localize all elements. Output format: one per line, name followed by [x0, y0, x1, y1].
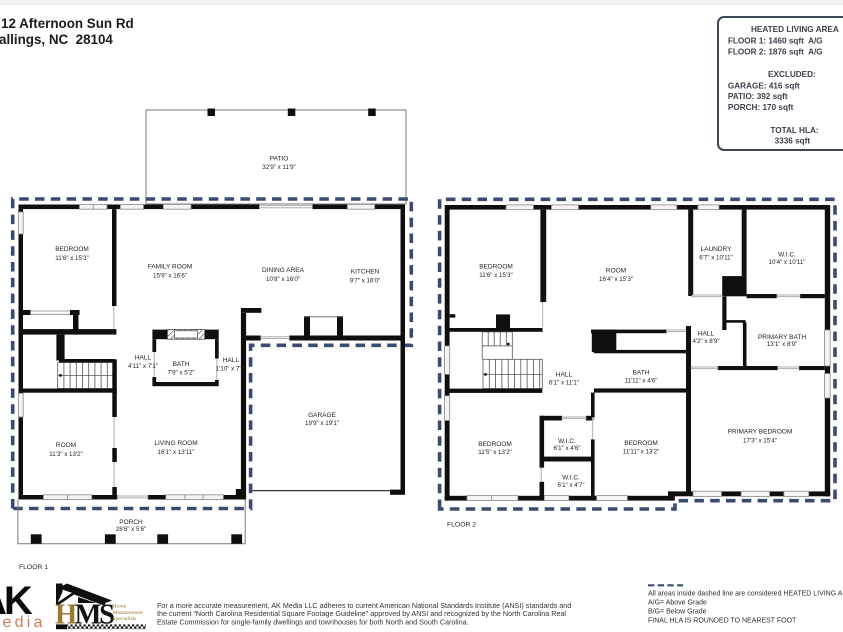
- svg-text:15'9" x 16'6": 15'9" x 16'6": [153, 272, 187, 279]
- svg-text:28'6" x 5'6": 28'6" x 5'6": [116, 526, 147, 533]
- svg-text:4'2" x 8'9": 4'2" x 8'9": [692, 338, 719, 345]
- svg-text:6'1" x 4'6": 6'1" x 4'6": [553, 445, 580, 452]
- svg-text:FLOOR 2: 1876 sqft A/G: FLOOR 2: 1876 sqft A/G: [728, 47, 823, 56]
- svg-text:Home: Home: [113, 604, 127, 610]
- svg-text:4'11" x 7'1": 4'11" x 7'1": [128, 363, 158, 370]
- svg-text:PRIMARY BEDROOM: PRIMARY BEDROOM: [728, 428, 793, 435]
- svg-text:7'9" x 5'2": 7'9" x 5'2": [167, 370, 194, 377]
- svg-text:16'1" x 13'11": 16'1" x 13'11": [158, 449, 195, 456]
- svg-text:EXCLUDED:: EXCLUDED:: [768, 70, 816, 79]
- svg-text:11'5" x 13'2": 11'5" x 13'2": [478, 449, 511, 456]
- svg-text:BEDROOM: BEDROOM: [55, 246, 89, 253]
- svg-text:3336 sqft: 3336 sqft: [775, 137, 811, 146]
- svg-text:BATH: BATH: [173, 361, 190, 368]
- svg-text:BATH: BATH: [633, 369, 650, 376]
- svg-text:9'7" x 16'0": 9'7" x 16'0": [350, 277, 381, 284]
- svg-text:6'7" x 10'11": 6'7" x 10'11": [699, 254, 732, 261]
- svg-text:11'11" x 4'6": 11'11" x 4'6": [624, 377, 657, 384]
- svg-text:media: media: [0, 614, 46, 631]
- svg-text:FINAL HLA IS ROUNDED TO NEARES: FINAL HLA IS ROUNDED TO NEAREST FOOT: [648, 617, 797, 624]
- svg-text:19'9" x 19'1": 19'9" x 19'1": [305, 420, 339, 427]
- svg-text:11'6" x 15'3": 11'6" x 15'3": [55, 255, 88, 262]
- svg-text:HALL: HALL: [556, 371, 573, 378]
- svg-text:FLOOR 1: FLOOR 1: [19, 564, 48, 571]
- svg-text:1'10" x 7'1": 1'10" x 7'1": [216, 366, 247, 373]
- svg-text:All areas inside dashed line a: All areas inside dashed line are conside…: [648, 591, 843, 598]
- svg-text:GARAGE: GARAGE: [308, 412, 336, 419]
- svg-text:ROOM: ROOM: [606, 267, 626, 274]
- svg-text:B/G= Below Grade: B/G= Below Grade: [648, 609, 707, 616]
- svg-text:GARAGE: 416 sqft: GARAGE: 416 sqft: [728, 81, 800, 90]
- svg-text:32'9" x 11'9": 32'9" x 11'9": [262, 164, 295, 171]
- svg-text:Measurement: Measurement: [113, 610, 144, 616]
- svg-text:HALL: HALL: [698, 330, 715, 337]
- svg-text:13'1" x 8'9": 13'1" x 8'9": [767, 341, 798, 348]
- svg-text:FLOOR 1: 1460 sqft A/G: FLOOR 1: 1460 sqft A/G: [728, 37, 823, 46]
- svg-text:BEDROOM: BEDROOM: [479, 263, 513, 270]
- svg-text:PATIO: 392 sqft: PATIO: 392 sqft: [728, 92, 788, 101]
- svg-text:11'6" x 15'3": 11'6" x 15'3": [479, 272, 512, 279]
- svg-text:16'4" x 15'3": 16'4" x 15'3": [599, 276, 633, 283]
- svg-text:6'1" x 4'7": 6'1" x 4'7": [557, 482, 584, 489]
- svg-text:Estate Commission for single-f: Estate Commission for single-family dwel…: [157, 617, 469, 626]
- svg-text:TOTAL HLA:: TOTAL HLA:: [770, 126, 818, 135]
- svg-text:11'3" x 13'2": 11'3" x 13'2": [49, 451, 82, 458]
- svg-text:ROOM: ROOM: [56, 442, 76, 449]
- svg-text:PRIMARY BATH: PRIMARY BATH: [758, 334, 806, 341]
- svg-text:W.I.C.: W.I.C.: [562, 474, 580, 481]
- svg-text:W.I.C.: W.I.C.: [778, 251, 796, 258]
- svg-text:PORCH: 170 sqft: PORCH: 170 sqft: [728, 103, 794, 112]
- svg-text:FAMILY ROOM: FAMILY ROOM: [148, 263, 193, 270]
- svg-text:17'3" x 15'4": 17'3" x 15'4": [743, 437, 777, 444]
- svg-text:6'1" x 11'1": 6'1" x 11'1": [549, 379, 579, 386]
- svg-text:LAUNDRY: LAUNDRY: [701, 246, 733, 253]
- svg-text:HALL: HALL: [223, 357, 240, 364]
- svg-text:10'4" x 10'11": 10'4" x 10'11": [769, 259, 806, 266]
- svg-text:W.I.C.: W.I.C.: [558, 438, 576, 445]
- svg-text:BEDROOM: BEDROOM: [624, 440, 658, 447]
- svg-text:10'8" x 16'0": 10'8" x 16'0": [266, 276, 300, 283]
- svg-text:PORCH: PORCH: [119, 519, 143, 526]
- svg-text:KITCHEN: KITCHEN: [351, 268, 380, 275]
- svg-text:LIVING ROOM: LIVING ROOM: [154, 440, 197, 447]
- svg-text:HEATED LIVING AREA: HEATED LIVING AREA: [751, 25, 839, 34]
- svg-text:A/G= Above Grade: A/G= Above Grade: [648, 600, 707, 607]
- svg-text:11'11" x 13'2": 11'11" x 13'2": [623, 448, 659, 455]
- svg-text:DINING AREA: DINING AREA: [262, 267, 305, 274]
- svg-text:HALL: HALL: [135, 355, 152, 362]
- svg-text:BEDROOM: BEDROOM: [478, 441, 512, 448]
- svg-text:Specialists: Specialists: [113, 616, 137, 622]
- svg-text:PATIO: PATIO: [270, 155, 289, 162]
- svg-text:FLOOR 2: FLOOR 2: [447, 522, 476, 529]
